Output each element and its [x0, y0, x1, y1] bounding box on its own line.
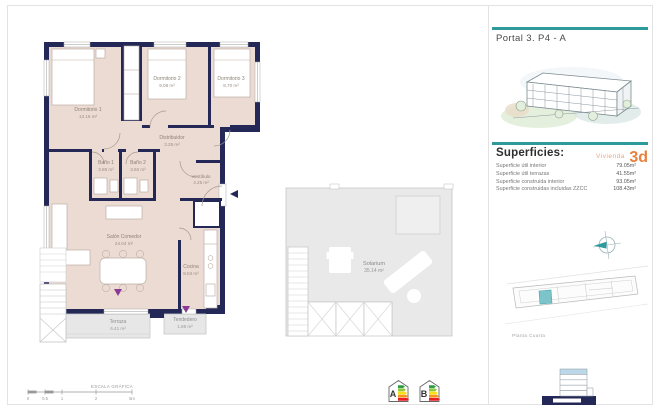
- room-label-dormitorio-1: Dormitorio 113.16 m²: [74, 107, 101, 119]
- portal-title: Portal 3. P4 - A: [496, 33, 566, 44]
- scale-bar: ESCALA GRÁFICA 0 0.5 1 2 5m: [24, 380, 139, 404]
- energy-rating-a-icon: A: [386, 378, 411, 405]
- room-label-bano-2: Baño 23.60 m²: [130, 160, 146, 172]
- room-label-salon-comedor: Salón Comedor24.04 m²: [107, 234, 142, 246]
- room-label-distribuidor: Distribuidor3.25 m²: [159, 135, 184, 147]
- superficies-row: Superficie útil terrazas41.55m²: [496, 171, 636, 179]
- room-label-vestibulo: Vestíbulo4.25 m²: [192, 174, 211, 186]
- superficies-row: Superficie construidas incluidas ZZCC108…: [496, 186, 636, 194]
- building-illustration: [497, 54, 649, 134]
- room-label-bano-1: Baño 13.85 m²: [98, 160, 114, 172]
- svg-text:ESCALA GRÁFICA: ESCALA GRÁFICA: [91, 384, 133, 389]
- floor-indicator-icon: [540, 364, 600, 406]
- room-label-cocina: Cocina8.04 m²: [183, 264, 199, 276]
- room-label-tendedero: Tendedero1.88 m²: [173, 317, 197, 329]
- plan-sheet: Dormitorio 113.16 m² Dormitorio 29.08 m²…: [0, 0, 660, 410]
- vivienda-label: Vivienda: [596, 153, 625, 160]
- svg-text:B: B: [421, 389, 428, 399]
- panel-top-rule: [492, 27, 648, 30]
- svg-text:2: 2: [95, 396, 98, 401]
- superficies-row: Superficie útil interior79.05m²: [496, 163, 636, 171]
- site-plan-caption: Planta Cuarta: [512, 334, 545, 339]
- room-label-dormitorio-2: Dormitorio 29.08 m²: [153, 76, 180, 88]
- svg-text:5m: 5m: [129, 396, 135, 401]
- svg-text:A: A: [390, 389, 397, 399]
- room-label-dormitorio-3: Dormitorio 38.70 m²: [217, 76, 244, 88]
- superficies-row: Superficie construida interior93.05m²: [496, 179, 636, 187]
- site-plan: [505, 258, 650, 330]
- energy-rating-b-icon: B: [417, 378, 442, 405]
- superficies-table: Superficie útil interior79.05m² Superfic…: [496, 163, 636, 194]
- compass-icon: [592, 230, 622, 260]
- panel-mid-rule: [492, 142, 648, 145]
- superficies-heading: Superficies:: [496, 147, 564, 159]
- room-label-solarium: Solarium35.14 m²: [363, 260, 385, 276]
- room-label-terraza: Terraza6.41 m²: [110, 319, 127, 331]
- svg-text:1: 1: [61, 396, 64, 401]
- svg-text:0: 0: [27, 396, 30, 401]
- svg-text:0.5: 0.5: [42, 396, 48, 401]
